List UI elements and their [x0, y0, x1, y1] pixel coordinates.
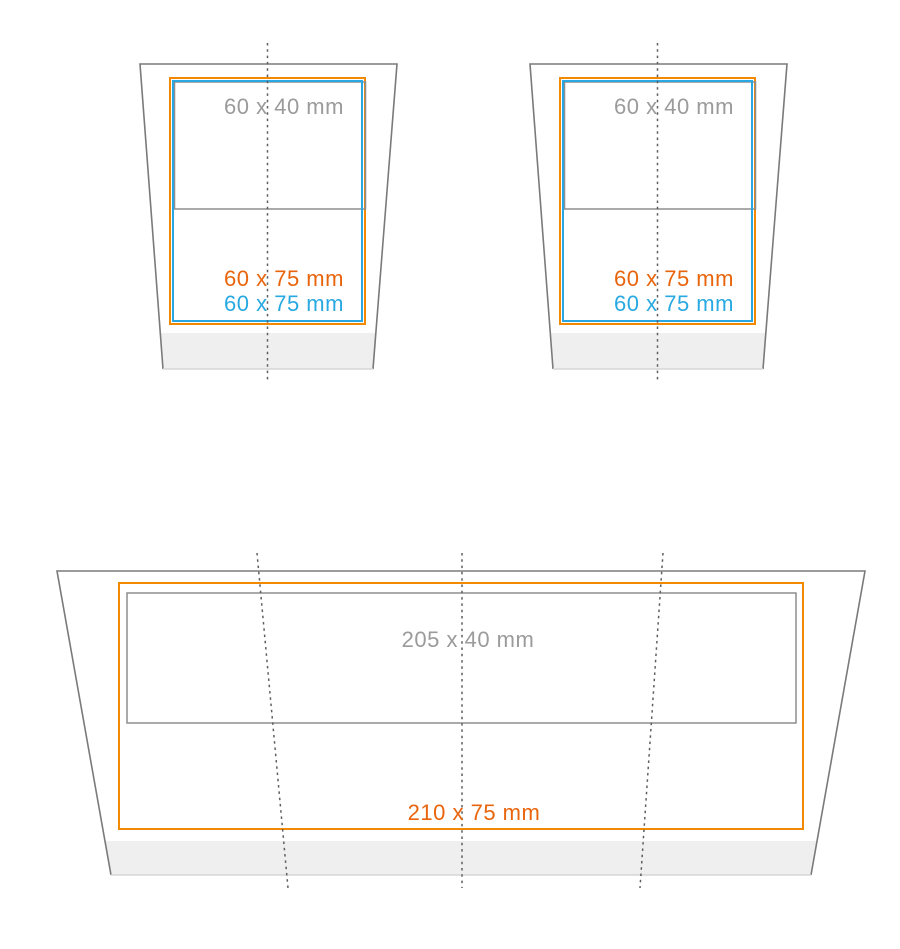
wrap-left-fold-dashed-line [257, 553, 288, 888]
cup-left-label-60x40: 60 x 40 mm [224, 94, 344, 119]
wrap-label-orange-210x75: 210 x 75 mm [408, 800, 541, 825]
cup-left: 60 x 40 mm 60 x 75 mm 60 x 75 mm [140, 43, 397, 382]
cup-right: 60 x 40 mm 60 x 75 mm 60 x 75 mm [530, 43, 787, 382]
cup-left-base-band [160, 333, 375, 369]
wrap-area-gray-205x40 [127, 593, 796, 723]
cup-right-label-60x40: 60 x 40 mm [614, 94, 734, 119]
wrap-print-area-orange-210x75 [119, 583, 803, 829]
cup-left-label-blue-60x75: 60 x 75 mm [224, 291, 344, 316]
cup-right-base-band [550, 333, 766, 369]
diagram-svg: 60 x 40 mm 60 x 75 mm 60 x 75 mm 60 x 40… [0, 0, 900, 949]
wrap-right-fold-dashed-line [640, 553, 663, 888]
cup-right-label-orange-60x75: 60 x 75 mm [614, 266, 734, 291]
wrap-surface: 205 x 40 mm 210 x 75 mm [57, 553, 865, 888]
cup-left-label-orange-60x75: 60 x 75 mm [224, 266, 344, 291]
wrap-label-205x40: 205 x 40 mm [402, 627, 535, 652]
print-template-diagram: 60 x 40 mm 60 x 75 mm 60 x 75 mm 60 x 40… [0, 0, 900, 949]
wrap-base-band [105, 841, 817, 875]
cup-right-label-blue-60x75: 60 x 75 mm [614, 291, 734, 316]
